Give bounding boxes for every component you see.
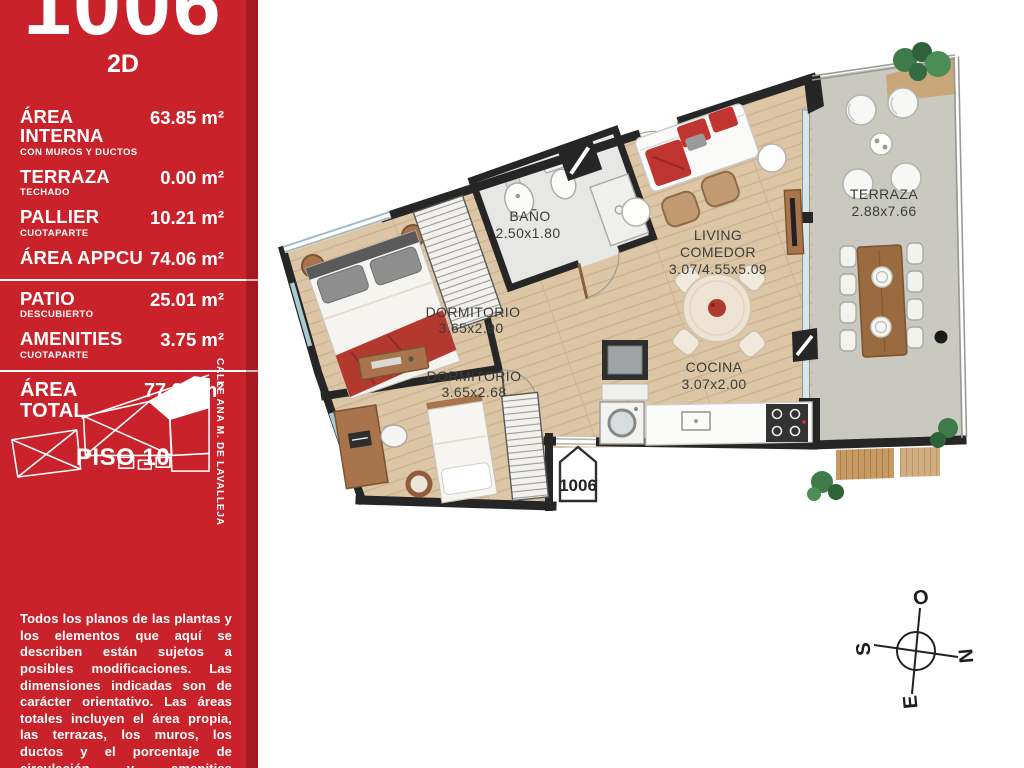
area-row-amenities: AMENITIESCUOTAPARTE 3.75 m² xyxy=(0,329,258,360)
compass-rose: O S N E xyxy=(852,586,976,710)
room-label-dormitorio1: DORMITORIO xyxy=(426,304,521,320)
area-value: 74.06 m² xyxy=(150,248,224,270)
area-label: PALLIER xyxy=(20,207,99,226)
fridge xyxy=(602,340,648,380)
room-label-bano: BAÑO xyxy=(509,208,550,224)
area-value: 10.21 m² xyxy=(150,207,224,229)
area-sublabel: DESCUBIERTO xyxy=(20,309,93,320)
area-label: PATIO xyxy=(20,289,93,308)
area-label: ÁREA APPCU xyxy=(20,248,143,267)
unit-marker-number: 1006 xyxy=(559,476,597,495)
area-row-interna: ÁREA INTERNACON MUROS Y DUCTOS 63.85 m² xyxy=(0,107,258,158)
deck-strips xyxy=(836,447,940,480)
divider xyxy=(0,279,258,281)
bedroom2-furniture xyxy=(334,392,548,502)
area-row-appcu: ÁREA APPCU 74.06 m² xyxy=(0,248,258,270)
room-dims-dormitorio2: 3.65x2.68 xyxy=(441,384,506,400)
compass-west: O xyxy=(911,586,930,610)
area-row-patio: PATIODESCUBIERTO 25.01 m² xyxy=(0,289,258,320)
room-label-cocina: COCINA xyxy=(686,359,743,375)
area-row-pallier: PALLIERCUOTAPARTE 10.21 m² xyxy=(0,207,258,238)
street-name-label: CALLE ANA M. DE LAVALLEJA xyxy=(214,358,225,508)
coffee-table xyxy=(870,133,892,155)
room-label-dormitorio2: DORMITORIO xyxy=(427,368,522,384)
tv-console xyxy=(784,190,803,255)
room-dims-bano: 2.50x1.80 xyxy=(495,225,560,241)
area-sublabel: CUOTAPARTE xyxy=(20,350,123,361)
plan-canvas: BAÑO 2.50x1.80 DORMITORIO 3.65x2.90 DORM… xyxy=(258,0,1024,768)
building-keyplan xyxy=(8,366,214,484)
stove xyxy=(766,404,808,442)
washer xyxy=(600,402,644,444)
side-table xyxy=(758,144,786,172)
area-sublabel: TECHADO xyxy=(20,187,110,198)
column xyxy=(935,331,948,344)
desk-chair xyxy=(381,425,407,447)
room-dims-terraza: 2.88x7.66 xyxy=(851,203,916,219)
compass-south: S xyxy=(852,641,875,656)
area-sublabel: CUOTAPARTE xyxy=(20,228,99,239)
compass-east: E xyxy=(899,694,922,709)
room-label-comedor: COMEDOR xyxy=(680,244,756,260)
area-label: TERRAZA xyxy=(20,167,110,186)
cabinet xyxy=(602,384,648,400)
room-dims-cocina: 3.07x2.00 xyxy=(681,376,746,392)
room-label-living: LIVING xyxy=(694,227,742,243)
unit-number-title: 1006 xyxy=(0,0,258,48)
pouf xyxy=(408,473,430,495)
area-value: 3.75 m² xyxy=(160,329,224,351)
room-label-terraza: TERRAZA xyxy=(850,186,918,202)
floorplan-sheet: 1006 2D ÁREA INTERNACON MUROS Y DUCTOS 6… xyxy=(0,0,1024,768)
area-value: 25.01 m² xyxy=(150,289,224,311)
plan-view-label: 2D xyxy=(0,50,258,79)
unit-marker: 1006 xyxy=(559,447,597,501)
area-label: ÁREA INTERNA xyxy=(20,107,150,146)
area-value: 63.85 m² xyxy=(150,107,224,129)
hall-window xyxy=(556,439,596,444)
area-label: AMENITIES xyxy=(20,329,123,348)
disclaimer-text: Todos los planos de las plantas y los el… xyxy=(20,611,232,768)
room-dims-living: 3.07/4.55x5.09 xyxy=(669,261,767,277)
side-table xyxy=(622,198,650,226)
floorplan-drawing: BAÑO 2.50x1.80 DORMITORIO 3.65x2.90 DORM… xyxy=(258,0,1024,768)
area-value: 0.00 m² xyxy=(160,167,224,189)
area-sublabel: CON MUROS Y DUCTOS xyxy=(20,147,150,158)
room-dims-dormitorio1: 3.65x2.90 xyxy=(438,320,503,336)
info-panel: 1006 2D ÁREA INTERNACON MUROS Y DUCTOS 6… xyxy=(0,0,258,768)
compass-north: N xyxy=(953,648,976,664)
area-row-terraza: TERRAZATECHADO 0.00 m² xyxy=(0,167,258,198)
